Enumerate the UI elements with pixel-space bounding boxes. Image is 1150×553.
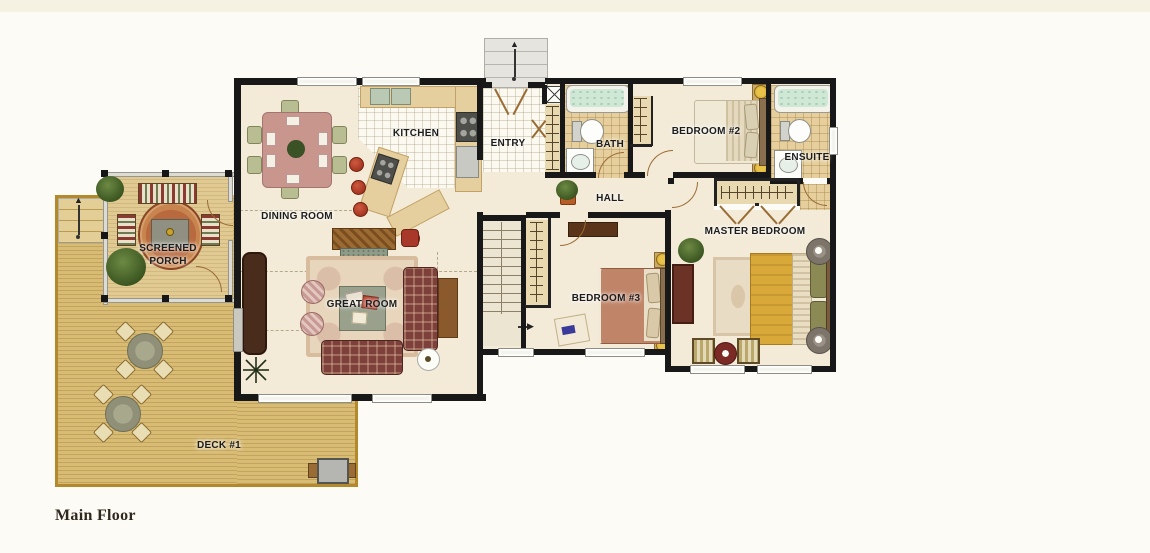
porch-bench-top	[138, 183, 197, 204]
wall-bedroom2-closet	[651, 96, 653, 146]
wall-bedroom3-top-1	[526, 212, 560, 218]
plan-title: Main Floor	[55, 507, 136, 525]
side-table-lamp	[815, 336, 822, 343]
stair-rail	[501, 222, 502, 314]
window-bedroom2-top	[683, 77, 742, 86]
room-label-hall: HALL	[586, 193, 634, 204]
bar-stool	[351, 180, 366, 195]
master-chair	[737, 338, 760, 364]
window-dining-top	[297, 77, 357, 86]
slider-greatroom-deck	[233, 308, 243, 352]
dried-plant-starburst	[242, 356, 270, 384]
wall-wing-right	[830, 78, 836, 372]
wall-master-closet-left	[714, 178, 717, 206]
fridge	[456, 146, 479, 178]
room-label-kitchen: KITCHEN	[380, 128, 452, 139]
porch-plant-small	[96, 176, 124, 202]
dining-centerpiece	[287, 140, 305, 158]
room-label-master-bedroom: MASTER BEDROOM	[693, 226, 817, 237]
porch-table-decor	[166, 228, 174, 236]
room-label-great-room: GREAT ROOM	[324, 299, 400, 310]
porch-screen-top	[103, 172, 235, 177]
window-stair-landing	[498, 348, 534, 357]
room-label-bedroom3: BEDROOM #3	[564, 293, 648, 304]
window-kitchen-top	[362, 77, 420, 86]
red-armchair	[401, 229, 419, 247]
window-greatroom-bottom-right	[372, 394, 432, 403]
place-setting	[266, 132, 276, 146]
wall-master-left	[665, 210, 671, 372]
wall-hall-top-2	[624, 172, 645, 178]
entry-closet-hangers	[546, 106, 559, 170]
window-greatroom-bottom-left	[258, 394, 352, 403]
wall-bedroom3-closet	[548, 218, 551, 308]
porch-post	[162, 295, 169, 302]
dining-chair	[247, 156, 262, 174]
wall-entry-closet-stub	[542, 85, 547, 104]
porch-post	[225, 170, 232, 177]
wall-master-jamb	[668, 178, 674, 184]
side-table-lamp	[815, 247, 822, 254]
round-armchair	[300, 312, 324, 336]
wall-bedroom3-top-2	[588, 212, 668, 218]
sofa-table	[438, 278, 458, 338]
window-bedroom3-bottom	[585, 348, 645, 357]
wall-entry-top-left	[483, 82, 492, 88]
bath-tub-water	[570, 89, 624, 107]
window-master-bottom-left	[690, 365, 745, 374]
porch-post	[225, 295, 232, 302]
room-label-bath: BATH	[586, 139, 634, 150]
deck-table	[127, 333, 163, 369]
window-master-bottom-right	[757, 365, 812, 374]
porch-screen-bottom	[103, 298, 235, 303]
kitchen-sink	[370, 88, 390, 105]
room-label-ensuite: ENSUITE	[776, 152, 838, 163]
pillow	[646, 307, 662, 338]
bar-stool	[349, 157, 364, 172]
master-bed-blanket	[750, 253, 794, 345]
wall-stairs-top	[477, 215, 526, 221]
page-top-band	[0, 0, 1150, 12]
wall-bath-right	[628, 84, 633, 174]
buffet-sideboard	[332, 228, 396, 250]
place-setting	[266, 154, 276, 168]
wall-bath-left	[560, 84, 565, 174]
entry-steps-up-arrow-icon: ▲	[510, 40, 519, 49]
place-setting	[286, 116, 300, 126]
wall-greatroom-right	[477, 212, 483, 401]
floor-plan-page: ▲	[0, 0, 1150, 553]
master-chair	[692, 338, 715, 364]
entry-steps-arrow-dot	[512, 77, 516, 81]
wall-bedroom3-closet-bottom	[525, 305, 551, 308]
porch-post	[101, 232, 108, 239]
place-setting	[318, 154, 328, 168]
room-label-screened-porch-line1: SCREENED	[128, 243, 208, 254]
ensuite-toilet-bowl	[788, 119, 811, 143]
floor-lamp-pole	[425, 356, 431, 362]
bbq-body	[317, 458, 349, 484]
porch-post	[162, 170, 169, 177]
porch-screen-right-lower	[228, 240, 233, 303]
wall-hall-top-1	[545, 172, 596, 178]
dining-chair	[332, 126, 347, 144]
place-setting	[318, 132, 328, 146]
room-label-dining-room: DINING ROOM	[258, 211, 336, 222]
deck-edge-bottom	[55, 484, 358, 487]
deck-stairs-up-arrow-icon: ▲	[74, 196, 83, 205]
stair-treads	[483, 222, 521, 312]
bath-sink	[571, 154, 590, 170]
bedroom2-closet-hangers	[634, 98, 647, 142]
master-round-table	[714, 342, 737, 365]
window-ensuite-right	[829, 127, 838, 155]
wall-main-top	[234, 78, 486, 85]
wall-master-closet-top	[714, 178, 800, 181]
bedroom3-closet-hangers	[530, 222, 543, 302]
wall-master-closet-mullion	[755, 203, 759, 206]
room-label-entry: ENTRY	[480, 138, 536, 149]
wall-master-closet-right	[797, 178, 800, 206]
hall-plant	[556, 180, 578, 200]
deck-stairs-arrow-stem	[78, 205, 80, 235]
round-armchair	[301, 280, 325, 304]
room-label-screened-porch-line2: PORCH	[128, 256, 208, 267]
wall-stairs-right	[521, 218, 526, 348]
wall-main-left	[234, 78, 241, 401]
wall-ensuite-left	[766, 84, 771, 178]
master-plant	[678, 238, 704, 263]
porch-bench-left	[117, 214, 136, 246]
ensuite-tub-water	[778, 89, 828, 107]
entry-steps-arrow-stem	[514, 49, 516, 77]
leather-sofa-left	[242, 252, 267, 355]
room-label-deck: DECK #1	[187, 440, 251, 451]
kitchen-sink	[391, 88, 411, 105]
dining-chair	[332, 156, 347, 174]
room-label-bedroom2: BEDROOM #2	[664, 126, 748, 137]
deck-stairs-arrow-dot	[76, 235, 80, 239]
place-setting	[286, 174, 300, 184]
deck-table	[105, 396, 141, 432]
stairs-direction-arrow-icon: ▶	[527, 322, 534, 331]
wall-ensuite-bottom-2	[827, 178, 836, 184]
bar-stool	[353, 202, 368, 217]
master-dresser	[672, 264, 694, 324]
coffee-table-tray	[352, 311, 368, 324]
porch-post	[101, 295, 108, 302]
dining-chair	[247, 126, 262, 144]
sofa-right	[403, 267, 438, 351]
sofa-bottom	[321, 340, 403, 375]
pillow	[646, 272, 662, 303]
master-closet-hangers	[721, 186, 793, 199]
